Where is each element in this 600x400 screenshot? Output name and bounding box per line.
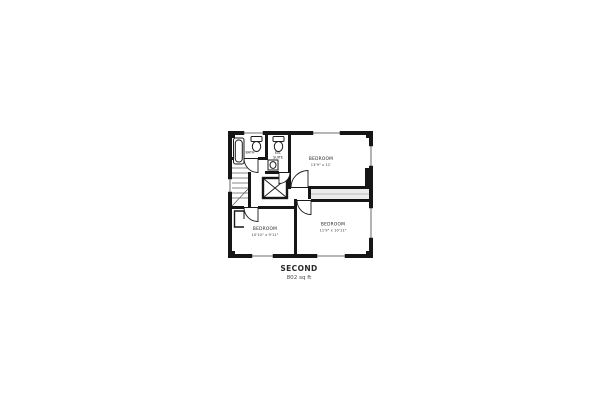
window bbox=[252, 254, 273, 258]
door-swing-bedroom-top bbox=[291, 171, 308, 188]
bedroom-right-dims: 11'9" x 10'11" bbox=[319, 229, 346, 233]
bedroom-top-dims: 13'9" x 11' bbox=[311, 163, 332, 167]
floorplan-page: BATH EN- SUITE BEDROOM 13'9" x 11' BEDRO… bbox=[0, 0, 600, 400]
floor-caption: SECOND 802 sq ft bbox=[280, 264, 317, 281]
window bbox=[244, 131, 263, 135]
door-swing-bedroom-right bbox=[297, 201, 311, 215]
window bbox=[369, 146, 373, 166]
bedroom-left-dims: 10'10" x 9'11" bbox=[251, 233, 278, 237]
ensuite-label-line1: EN- bbox=[275, 151, 282, 155]
floorplan-svg: BATH EN- SUITE BEDROOM 13'9" x 11' BEDRO… bbox=[0, 0, 600, 400]
bedroom-left-label: BEDROOM bbox=[253, 226, 277, 232]
window bbox=[369, 208, 373, 238]
stairs-icon bbox=[232, 168, 248, 206]
floor-area: 802 sq ft bbox=[287, 275, 313, 281]
window bbox=[313, 131, 340, 135]
window bbox=[228, 179, 232, 192]
door-swing-bedroom-left bbox=[244, 208, 258, 222]
closet-icon bbox=[235, 211, 245, 227]
bathtub-icon bbox=[234, 138, 245, 164]
toilet-icon bbox=[251, 137, 262, 152]
sink-icon bbox=[268, 160, 278, 170]
bedroom-right-label: BEDROOM bbox=[321, 222, 345, 228]
bedroom-top-label: BEDROOM bbox=[309, 156, 333, 162]
bath-label: BATH bbox=[245, 151, 254, 155]
door-swing-bath bbox=[244, 159, 258, 173]
toilet-icon bbox=[273, 137, 284, 152]
window bbox=[317, 254, 345, 258]
ensuite-label-line2: SUITE bbox=[273, 156, 283, 160]
floor-name: SECOND bbox=[280, 264, 317, 273]
